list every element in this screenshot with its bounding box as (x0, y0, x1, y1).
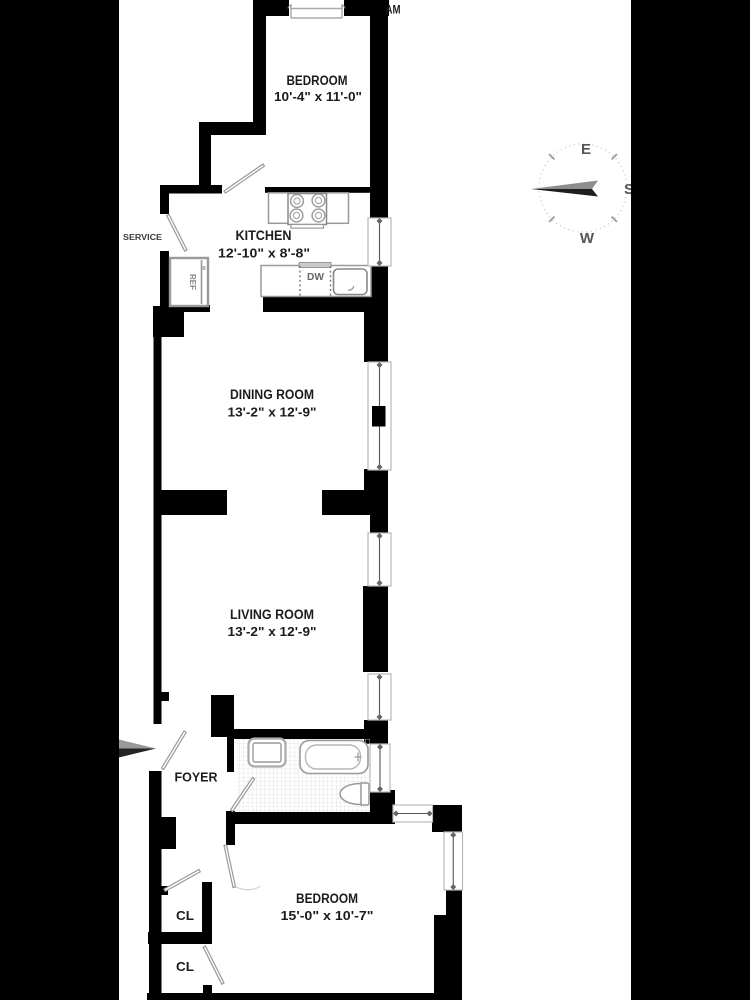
svg-text:CL: CL (176, 909, 194, 923)
svg-text:13'-2" x 12'-9": 13'-2" x 12'-9" (228, 405, 317, 420)
svg-text:E: E (581, 141, 591, 158)
svg-text:REF: REF (188, 274, 197, 290)
svg-text:LIVING ROOM: LIVING ROOM (230, 607, 314, 622)
svg-text:DINING ROOM: DINING ROOM (230, 387, 314, 402)
svg-text:15'-0" x 10'-7": 15'-0" x 10'-7" (281, 908, 374, 923)
svg-text:10'-4" x 11'-0": 10'-4" x 11'-0" (274, 89, 362, 104)
svg-text:12'-10" x 8'-8": 12'-10" x 8'-8" (218, 246, 310, 261)
svg-text:W: W (580, 230, 595, 247)
svg-text:BEDROOM: BEDROOM (287, 73, 348, 88)
svg-text:SERVICE: SERVICE (123, 232, 162, 242)
svg-text:DW: DW (307, 272, 325, 283)
svg-text:CL: CL (176, 960, 194, 974)
svg-text:AM: AM (386, 3, 401, 17)
svg-text:FOYER: FOYER (175, 771, 218, 785)
svg-text:BEDROOM: BEDROOM (296, 891, 358, 906)
svg-text:13'-2" x 12'-9": 13'-2" x 12'-9" (228, 624, 317, 639)
svg-text:KITCHEN: KITCHEN (236, 228, 292, 243)
